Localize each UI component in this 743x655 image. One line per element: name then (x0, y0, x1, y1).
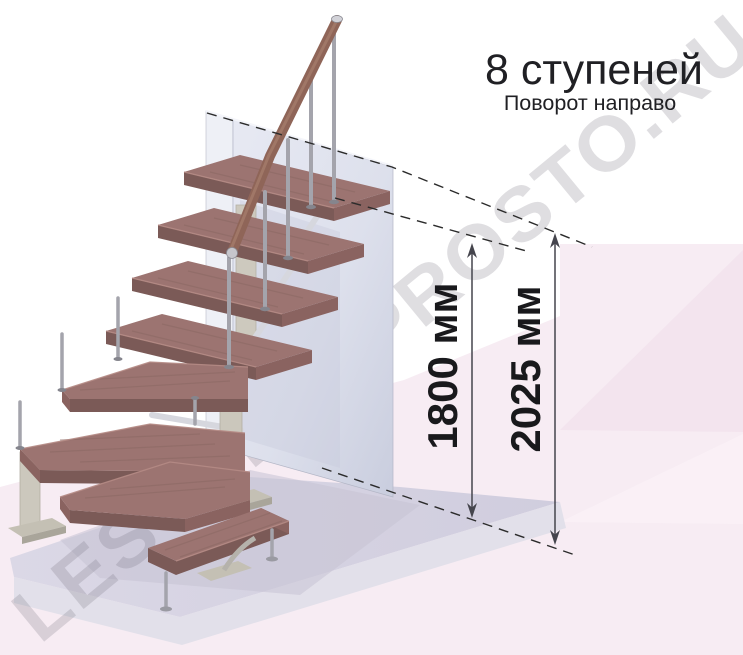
step-1-foot (266, 557, 278, 562)
page-subtitle: Поворот направо (504, 91, 676, 115)
handrail-end-cap (227, 248, 238, 259)
staircase-diagram: LESTNICY-PROSTO.RU (0, 0, 743, 655)
staircase-diagram-page: LESTNICY-PROSTO.RU (0, 0, 743, 655)
title-block: 8 ступеней Поворот направо (485, 46, 703, 115)
page-title: 8 ступеней (485, 46, 703, 94)
dimension-1800-label: 1800 мм (419, 282, 466, 449)
handrail-top-cap (332, 16, 343, 23)
step-1-foot (160, 607, 172, 612)
dimension-2025-label: 2025 мм (502, 285, 549, 452)
